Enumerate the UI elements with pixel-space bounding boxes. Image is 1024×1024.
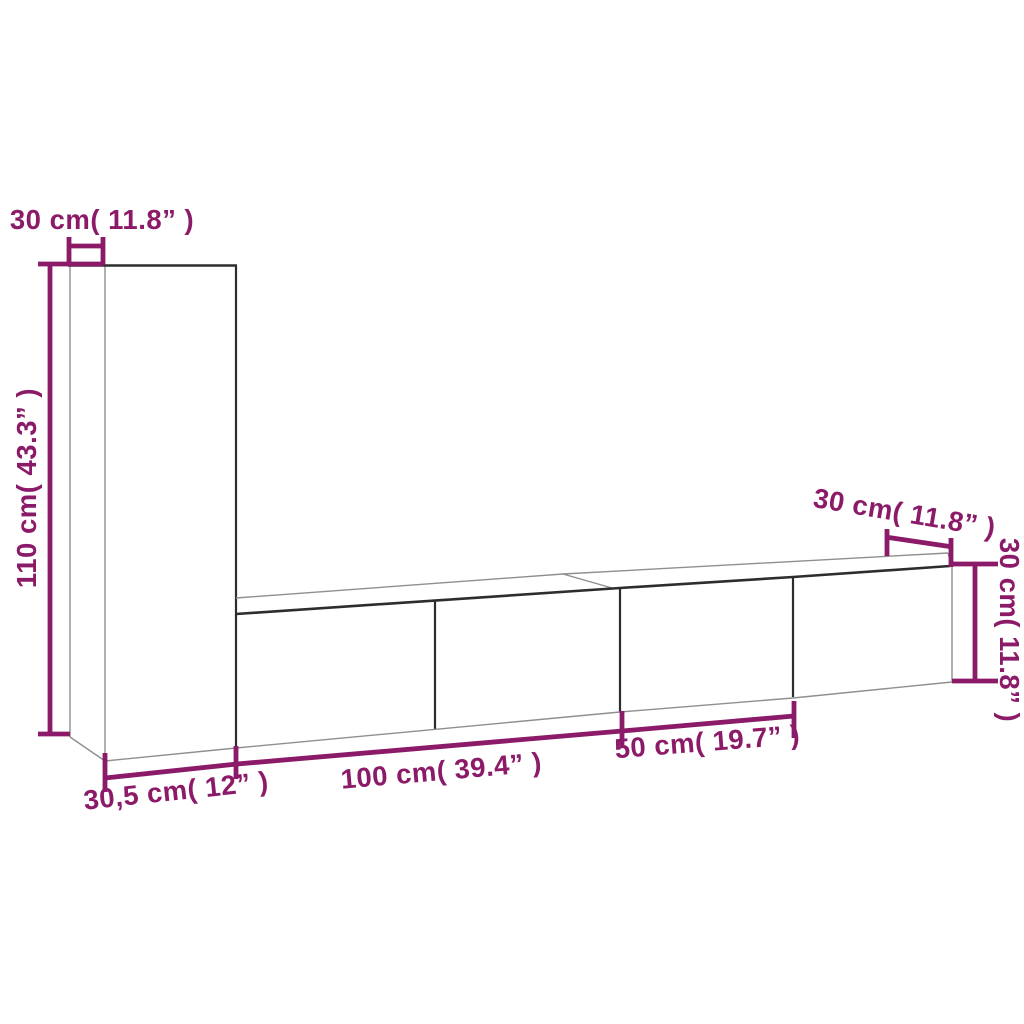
- tall-cabinet-side-bottom-edge: [70, 737, 105, 761]
- tall-cabinet-depth-label: 30 cm( 11.8” ): [10, 204, 194, 235]
- cabinet-row-back-top-edge: [236, 553, 948, 598]
- medium-cabinet-width-label: 50 cm( 19.7” ): [613, 719, 801, 764]
- dimension-line: [885, 537, 953, 547]
- cabinet-row-bottom-edge: [236, 682, 952, 748]
- tall-cabinet-front-bottom-edge: [105, 748, 236, 761]
- tall-cabinet-height-label: 110 cm( 43.3” ): [11, 388, 42, 588]
- right-cabinet-height-label: 30 cm( 11.8” ): [994, 538, 1024, 722]
- diagram-canvas: 30 cm( 11.8” ) 110 cm( 43.3” ) 30,5 cm( …: [0, 0, 1024, 1024]
- cabinet-row-topface-junction-edge: [563, 574, 612, 588]
- right-cabinet-depth-label: 30 cm( 11.8” ): [811, 482, 998, 543]
- tall-cabinet-width-label: 30,5 cm( 12” ): [82, 765, 270, 815]
- dimension-right-cabinet-depth: 30 cm( 11.8” ): [811, 482, 998, 567]
- dimension-annotations: 30 cm( 11.8” ) 110 cm( 43.3” ) 30,5 cm( …: [10, 204, 1024, 816]
- dimension-tall-cabinet-depth: 30 cm( 11.8” ): [10, 204, 194, 265]
- dimension-tall-cabinet-height: 110 cm( 43.3” ): [11, 263, 103, 734]
- dimension-diagram: 30 cm( 11.8” ) 110 cm( 43.3” ) 30,5 cm( …: [0, 0, 1024, 1024]
- dimension-bottom-widths: 30,5 cm( 12” ) 100 cm( 39.4” ) 50 cm( 19…: [82, 701, 801, 816]
- dimension-right-cabinet-height: 30 cm( 11.8” ): [952, 538, 1024, 722]
